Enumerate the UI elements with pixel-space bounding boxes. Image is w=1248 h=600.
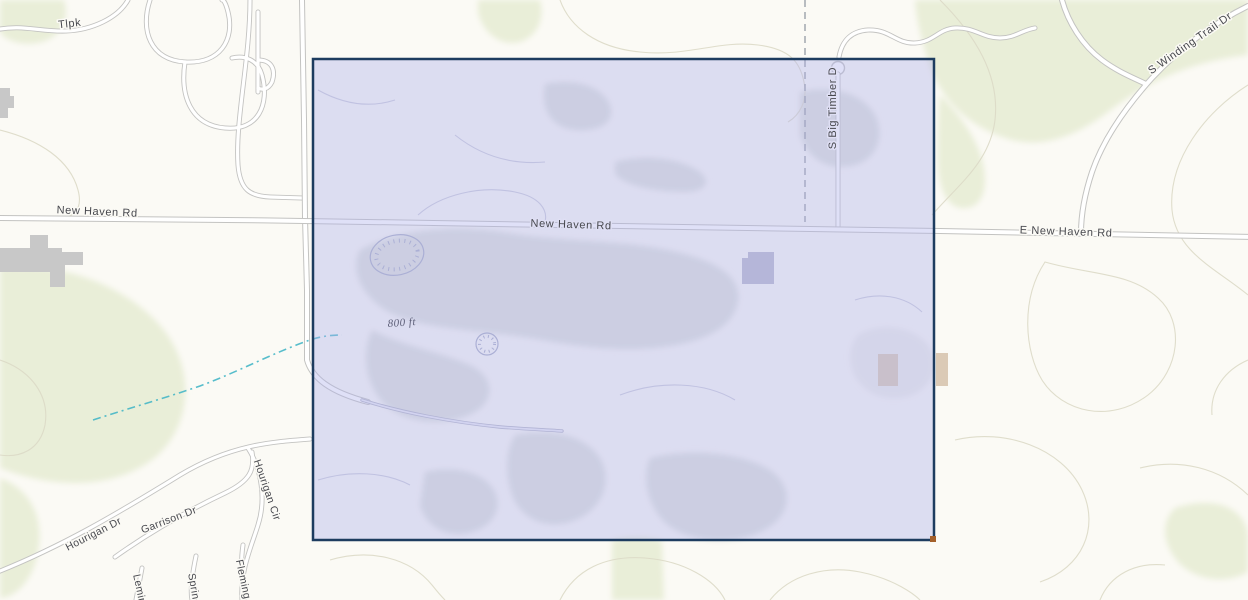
label-s-big-timber-dr: S Big Timber D xyxy=(827,67,839,149)
map-viewport[interactable]: Tlpk New Haven Rd New Haven Rd E New Hav… xyxy=(0,0,1248,600)
selection-vertex-handle[interactable] xyxy=(930,536,936,542)
selection-rectangle[interactable] xyxy=(313,59,934,540)
map-canvas[interactable]: Tlpk New Haven Rd New Haven Rd E New Hav… xyxy=(0,0,1248,600)
label-contour-800ft: 800 ft xyxy=(387,316,417,330)
tan-building-outside xyxy=(936,353,948,386)
label-tlpk: Tlpk xyxy=(58,17,82,31)
